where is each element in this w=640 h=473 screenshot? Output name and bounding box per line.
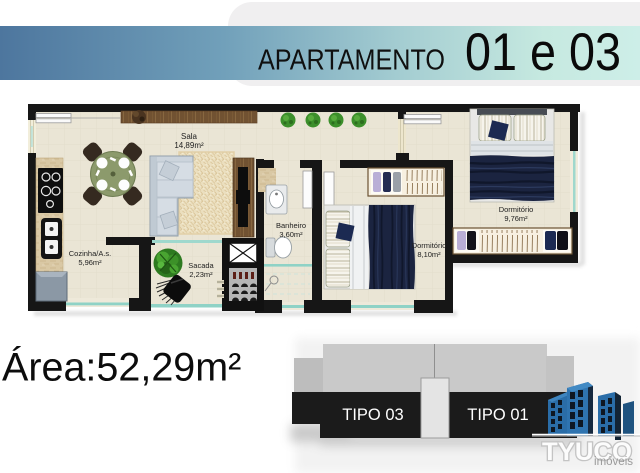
svg-text:Sala: Sala [181, 132, 198, 141]
svg-text:01 e 03: 01 e 03 [465, 23, 621, 82]
svg-text:5,96m²: 5,96m² [78, 258, 102, 267]
svg-text:imóveis: imóveis [594, 456, 633, 468]
svg-text:9,76m²: 9,76m² [504, 214, 528, 223]
svg-text:2,23m²: 2,23m² [189, 270, 213, 279]
svg-text:Dormitório: Dormitório [499, 205, 534, 214]
svg-text:TIPO 01: TIPO 01 [467, 406, 528, 424]
svg-text:Cozinha/A.s.: Cozinha/A.s. [69, 249, 112, 258]
svg-text:3,60m²: 3,60m² [279, 230, 303, 239]
svg-text:Dormitório: Dormitório [412, 241, 447, 250]
svg-text:Sacada: Sacada [188, 261, 214, 270]
svg-text:Área:52,29m²: Área:52,29m² [2, 346, 241, 390]
svg-text:14,89m²: 14,89m² [174, 141, 204, 150]
svg-text:Banheiro: Banheiro [276, 221, 306, 230]
svg-text:TIPO 03: TIPO 03 [342, 406, 403, 424]
svg-text:8,10m²: 8,10m² [417, 250, 441, 259]
svg-text:APARTAMENTO: APARTAMENTO [258, 45, 445, 77]
